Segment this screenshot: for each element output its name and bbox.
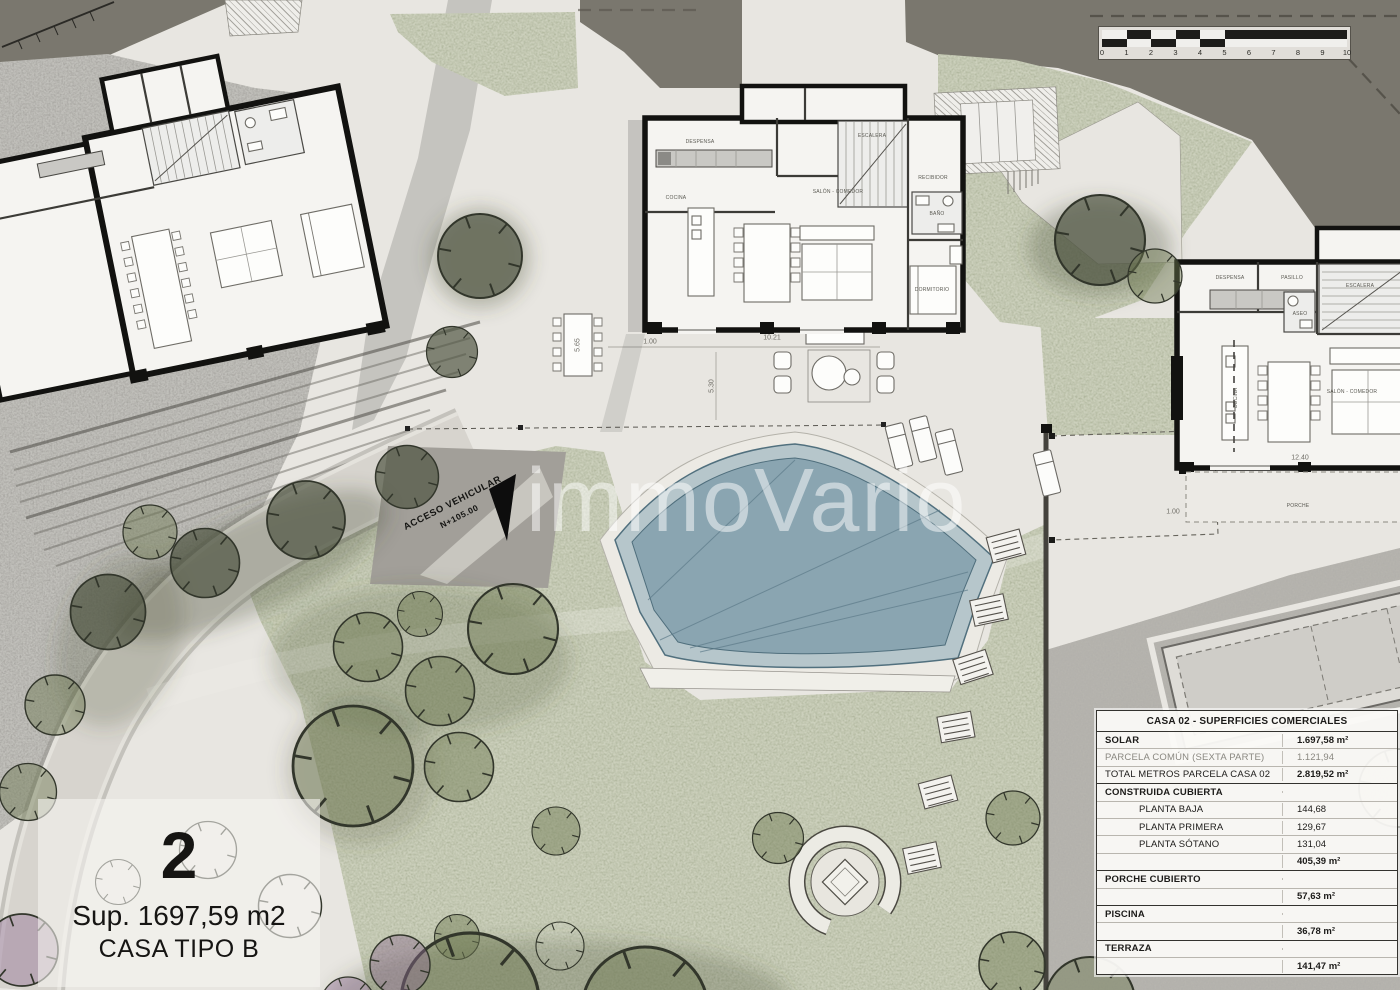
scale-bar-tick: 2 xyxy=(1149,48,1153,57)
summary-row-value xyxy=(1282,913,1397,915)
scale-bar-cell xyxy=(1323,30,1348,39)
room-label: PASILLO xyxy=(1281,275,1303,281)
dimension-label: 12.40 xyxy=(1291,455,1309,462)
summary-row-label: PLANTA SÓTANO xyxy=(1097,838,1282,851)
dimension-label: 5.65 xyxy=(575,338,582,352)
scale-bar-ticks: 012345678910 xyxy=(1102,47,1347,59)
summary-row-value: 57,63 m² xyxy=(1282,890,1397,903)
scale-bar-cell xyxy=(1225,39,1250,48)
summary-table-row: PARCELA COMÚN (SEXTA PARTE)1.121,94 xyxy=(1097,748,1397,765)
summary-table-row: 405,39 m² xyxy=(1097,853,1397,870)
scale-bar-cell xyxy=(1274,39,1299,48)
scale-bar-row-bottom xyxy=(1102,39,1347,48)
scale-bar-cell xyxy=(1127,39,1152,48)
dimension-label: 10.21 xyxy=(763,335,781,342)
summary-row-value: 405,39 m² xyxy=(1282,855,1397,868)
summary-table-row: PLANTA SÓTANO131,04 xyxy=(1097,835,1397,852)
room-label: DORMITORIO xyxy=(915,287,949,293)
plot-number: 2 xyxy=(161,822,198,888)
room-label: PORCHE xyxy=(1287,503,1310,509)
summary-row-label xyxy=(1097,896,1282,898)
summary-table-row: 57,63 m² xyxy=(1097,888,1397,905)
scale-bar-cell xyxy=(1323,39,1348,48)
scale-bar-tick: 10 xyxy=(1343,48,1351,57)
scale-bar-tick: 5 xyxy=(1222,48,1226,57)
scale-bar: 012345678910 xyxy=(1098,26,1351,60)
summary-row-value xyxy=(1282,948,1397,950)
scale-bar-cell xyxy=(1102,30,1127,39)
room-label: ESCALERA xyxy=(858,133,886,139)
summary-row-value: 1.121,94 xyxy=(1282,751,1397,764)
room-label: SALÓN - COMEDOR xyxy=(1327,389,1378,395)
scale-bar-cell xyxy=(1200,30,1225,39)
scale-bar-cell xyxy=(1127,30,1152,39)
summary-table-rows: SOLAR1.697,58 m²PARCELA COMÚN (SEXTA PAR… xyxy=(1097,731,1397,974)
summary-row-value: 1.697,58 m² xyxy=(1282,734,1397,747)
summary-row-label xyxy=(1097,930,1282,932)
summary-row-value: 129,67 xyxy=(1282,821,1397,834)
scale-bar-cell xyxy=(1249,30,1274,39)
summary-table-row: PLANTA PRIMERA129,67 xyxy=(1097,818,1397,835)
site-plan-page: immoVario ACCESO VEHICULAR N+105.00 0123… xyxy=(0,0,1400,990)
plot-badge: 2 Sup. 1697,59 m2 CASA TIPO B xyxy=(38,799,320,987)
scale-bar-cell xyxy=(1102,39,1127,48)
summary-row-label: SOLAR xyxy=(1097,734,1282,747)
plot-type: CASA TIPO B xyxy=(99,935,260,964)
summary-row-label: TOTAL METROS PARCELA CASA 02 xyxy=(1097,768,1282,781)
scale-bar-cell xyxy=(1200,39,1225,48)
scale-bar-tick: 9 xyxy=(1320,48,1324,57)
watermark: immoVario xyxy=(526,450,967,553)
summary-row-value: 144,68 xyxy=(1282,803,1397,816)
scale-bar-tick: 3 xyxy=(1173,48,1177,57)
summary-row-value xyxy=(1282,878,1397,880)
summary-row-label: PORCHE CUBIERTO xyxy=(1097,873,1282,886)
summary-row-label: TERRAZA xyxy=(1097,942,1282,955)
scale-bar-tick: 7 xyxy=(1271,48,1275,57)
scale-bar-tick: 1 xyxy=(1124,48,1128,57)
scale-bar-row-top xyxy=(1102,30,1347,39)
summary-table-row: PLANTA BAJA144,68 xyxy=(1097,801,1397,818)
scale-bar-cell xyxy=(1298,39,1323,48)
summary-table-row: CONSTRUIDA CUBIERTA xyxy=(1097,783,1397,800)
scale-bar-cell xyxy=(1176,30,1201,39)
summary-table-row: TOTAL METROS PARCELA CASA 022.819,52 m² xyxy=(1097,766,1397,783)
summary-table-row: PISCINA xyxy=(1097,905,1397,922)
summary-row-label xyxy=(1097,861,1282,863)
scale-bar-tick: 0 xyxy=(1100,48,1104,57)
scale-bar-cell xyxy=(1151,39,1176,48)
room-label: COCINA xyxy=(1233,388,1239,409)
summary-row-value: 131,04 xyxy=(1282,838,1397,851)
scale-bar-tick: 4 xyxy=(1198,48,1202,57)
summary-table-row: 141,47 m² xyxy=(1097,957,1397,974)
scale-bar-tick: 8 xyxy=(1296,48,1300,57)
surface-summary-table: CASA 02 - SUPERFICIES COMERCIALES SOLAR1… xyxy=(1096,710,1398,975)
summary-row-value xyxy=(1282,791,1397,793)
scale-bar-cell xyxy=(1298,30,1323,39)
scale-bar-cell xyxy=(1249,39,1274,48)
summary-row-value: 2.819,52 m² xyxy=(1282,768,1397,781)
summary-row-label: PLANTA PRIMERA xyxy=(1097,821,1282,834)
plot-area: Sup. 1697,59 m2 xyxy=(72,900,285,932)
room-label: COCINA xyxy=(666,195,687,201)
summary-row-label: PARCELA COMÚN (SEXTA PARTE) xyxy=(1097,751,1282,764)
scale-bar-cell xyxy=(1151,30,1176,39)
scale-bar-cell xyxy=(1274,30,1299,39)
scale-bar-tick: 6 xyxy=(1247,48,1251,57)
room-label: SALÓN - COMEDOR xyxy=(813,189,864,195)
summary-row-value: 141,47 m² xyxy=(1282,960,1397,973)
summary-row-label: CONSTRUIDA CUBIERTA xyxy=(1097,786,1282,799)
room-label: RECIBIDOR xyxy=(918,175,948,181)
summary-table-title: CASA 02 - SUPERFICIES COMERCIALES xyxy=(1097,711,1397,731)
room-label: DESPENSA xyxy=(1216,275,1245,281)
building-right-house xyxy=(1171,228,1400,522)
dimension-label: 5.30 xyxy=(709,379,716,393)
room-label: ASEO xyxy=(1293,311,1308,317)
room-label: BAÑO xyxy=(930,211,945,217)
scale-bar-cell xyxy=(1225,30,1250,39)
scale-bar-cell xyxy=(1176,39,1201,48)
room-label: ESCALERA xyxy=(1346,283,1374,289)
summary-table-row: 36,78 m² xyxy=(1097,922,1397,939)
summary-table-row: PORCHE CUBIERTO xyxy=(1097,870,1397,887)
summary-table-row: TERRAZA xyxy=(1097,940,1397,957)
summary-row-label xyxy=(1097,965,1282,967)
summary-row-label: PISCINA xyxy=(1097,908,1282,921)
summary-row-value: 36,78 m² xyxy=(1282,925,1397,938)
room-label: DESPENSA xyxy=(686,139,715,145)
dimension-label: 1.00 xyxy=(643,339,657,346)
dimension-label: 1.00 xyxy=(1166,509,1180,516)
summary-row-label: PLANTA BAJA xyxy=(1097,803,1282,816)
summary-table-row: SOLAR1.697,58 m² xyxy=(1097,731,1397,748)
